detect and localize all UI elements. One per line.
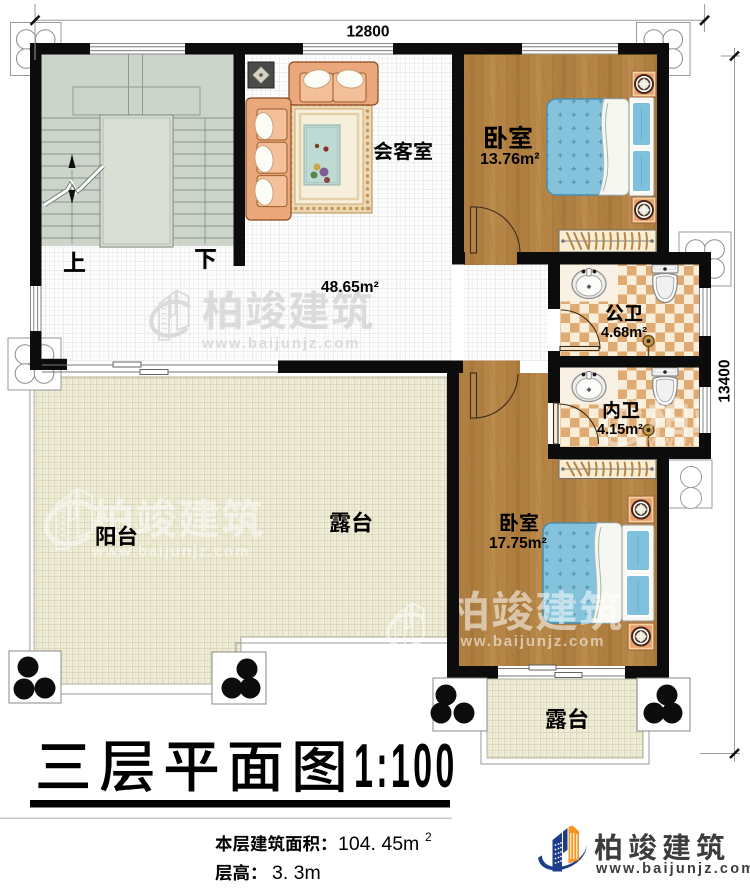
svg-text:1:100: 1:100	[354, 731, 458, 800]
svg-text:13400: 13400	[717, 359, 734, 402]
svg-text:www.baijunjz.com: www.baijunjz.com	[595, 861, 750, 877]
svg-text:13.76m²: 13.76m²	[480, 151, 540, 168]
svg-text:48.65m²: 48.65m²	[321, 279, 379, 296]
svg-text:4.15m²: 4.15m²	[597, 422, 643, 438]
svg-text:www.baijunjz.com: www.baijunjz.com	[446, 633, 605, 650]
svg-text:www.baijunjz.com: www.baijunjz.com	[201, 335, 360, 352]
svg-text:4.68m²: 4.68m²	[601, 325, 647, 341]
svg-text:104. 45m: 104. 45m	[338, 833, 419, 855]
svg-text:17.75m²: 17.75m²	[489, 535, 547, 552]
svg-text:3. 3m: 3. 3m	[272, 862, 321, 884]
svg-text:www.baijunjz.com: www.baijunjz.com	[91, 543, 250, 560]
svg-text:2: 2	[425, 830, 432, 844]
svg-text:12800: 12800	[346, 24, 389, 41]
